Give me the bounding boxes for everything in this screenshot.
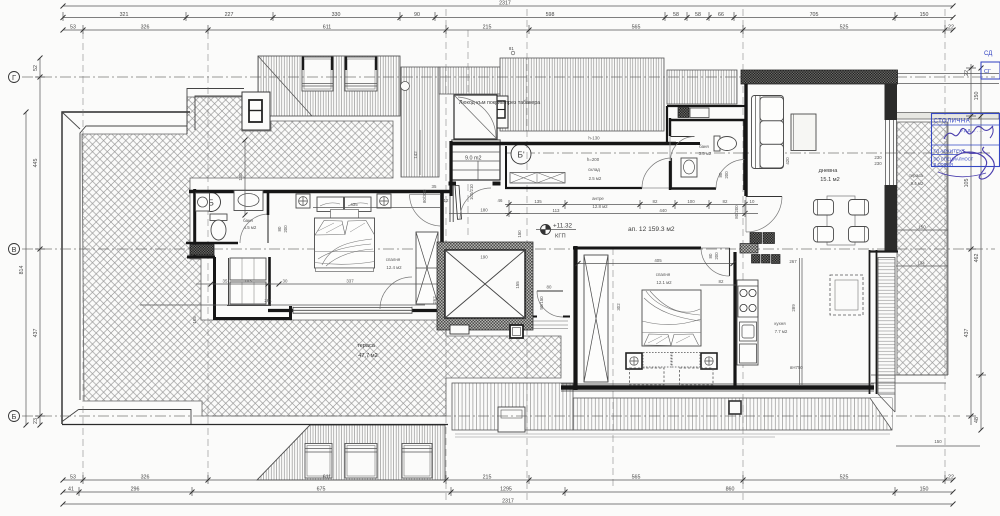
svg-text:437: 437 [964, 329, 970, 338]
svg-text:420: 420 [785, 157, 790, 165]
svg-text:СТОЛИЧНА: СТОЛИЧНА [934, 119, 971, 125]
svg-text:525: 525 [840, 24, 849, 30]
svg-text:337: 337 [346, 279, 354, 284]
svg-text:тераса: тераса [357, 343, 376, 349]
svg-text:814: 814 [19, 266, 25, 275]
svg-text:35: 35 [432, 184, 437, 189]
svg-text:150: 150 [918, 224, 926, 229]
svg-text:113: 113 [553, 208, 561, 213]
svg-text:150: 150 [934, 439, 942, 444]
svg-text:611: 611 [323, 474, 331, 480]
svg-text:СД: СД [984, 51, 992, 57]
svg-text:180: 180 [480, 208, 488, 213]
svg-text:326: 326 [141, 24, 150, 30]
svg-text:190: 190 [480, 255, 488, 260]
svg-text:h-130: h-130 [588, 136, 600, 141]
svg-text:100: 100 [687, 199, 695, 204]
svg-text:22: 22 [948, 474, 954, 480]
svg-text:440: 440 [659, 208, 667, 213]
svg-text:4.5 м2: 4.5 м2 [244, 225, 257, 230]
svg-text:склад: склад [588, 167, 600, 172]
svg-text:тераса: тераса [909, 173, 923, 178]
svg-text:155: 155 [515, 281, 520, 289]
svg-text:53: 53 [70, 24, 76, 30]
svg-text:142: 142 [413, 151, 418, 159]
svg-text:82: 82 [723, 199, 728, 204]
svg-text:130: 130 [238, 173, 243, 181]
svg-text:12: 12 [444, 198, 449, 203]
svg-text:215: 215 [483, 24, 492, 30]
svg-text:262: 262 [432, 296, 437, 304]
svg-text:66: 66 [718, 12, 724, 18]
svg-text:80/200: 80/200 [734, 205, 739, 219]
svg-text:860: 860 [726, 486, 735, 492]
svg-text:35: 35 [223, 279, 228, 284]
svg-text:15.1 м2: 15.1 м2 [820, 177, 839, 183]
svg-text:598: 598 [546, 12, 555, 18]
svg-text:80/200: 80/200 [422, 189, 427, 203]
svg-text:23: 23 [33, 418, 39, 424]
svg-text:230: 230 [874, 161, 882, 166]
svg-text:вН750: вН750 [790, 365, 803, 370]
svg-text:100/210: 100/210 [469, 184, 474, 200]
svg-text:1295: 1295 [500, 486, 512, 492]
svg-text:баня: баня [243, 218, 253, 223]
svg-text:230: 230 [874, 155, 882, 160]
svg-text:90/150: 90/150 [539, 296, 544, 310]
svg-text:82: 82 [653, 199, 658, 204]
svg-text:48: 48 [974, 417, 980, 423]
svg-text:22: 22 [964, 70, 970, 76]
svg-text:Б': Б' [517, 150, 525, 160]
svg-text:спалня: спалня [386, 257, 401, 262]
svg-text:58: 58 [673, 12, 679, 18]
svg-text:10: 10 [750, 199, 755, 204]
svg-text:405: 405 [654, 258, 662, 263]
svg-text:150: 150 [517, 230, 522, 238]
svg-text:261: 261 [264, 298, 272, 303]
svg-text:9.4 м2: 9.4 м2 [911, 181, 924, 186]
svg-text:150: 150 [920, 486, 929, 492]
svg-text:кухня: кухня [774, 321, 786, 326]
svg-text:200: 200 [283, 225, 288, 233]
svg-text:80: 80 [708, 253, 713, 258]
svg-text:200: 200 [714, 252, 719, 260]
svg-text:103: 103 [244, 279, 252, 284]
svg-text:90: 90 [414, 12, 420, 18]
svg-text:9.0 m2: 9.0 m2 [465, 156, 481, 162]
svg-text:81: 81 [509, 46, 514, 51]
svg-text:200: 200 [724, 171, 729, 179]
svg-text:+11.32: +11.32 [553, 223, 572, 230]
svg-text:В: В [11, 245, 16, 254]
svg-text:150: 150 [920, 12, 929, 18]
svg-text:565: 565 [632, 24, 641, 30]
svg-text:82: 82 [719, 279, 724, 284]
svg-text:80: 80 [718, 172, 723, 177]
svg-text:80: 80 [277, 226, 282, 231]
svg-text:80: 80 [547, 285, 552, 290]
svg-text:134: 134 [917, 260, 925, 265]
svg-text:Г: Г [12, 73, 16, 82]
svg-text:52: 52 [33, 65, 39, 71]
svg-text:Люкод към покрив през табакера: Люкод към покрив през табакера [459, 100, 540, 106]
svg-text:дневна: дневна [819, 168, 839, 174]
svg-text:58: 58 [695, 12, 701, 18]
svg-text:30: 30 [283, 279, 288, 284]
svg-text:12.4 м2: 12.4 м2 [386, 265, 402, 270]
svg-text:баня: баня [699, 144, 709, 149]
svg-text:7.7 м2: 7.7 м2 [775, 329, 788, 334]
svg-text:ап. 12 159.3 м2: ап. 12 159.3 м2 [628, 226, 675, 233]
svg-text:435: 435 [350, 202, 358, 207]
svg-text:705: 705 [810, 12, 819, 18]
svg-text:462: 462 [974, 254, 980, 263]
svg-text:525: 525 [840, 474, 849, 480]
svg-text:2317: 2317 [499, 1, 511, 7]
svg-text:330: 330 [332, 12, 341, 18]
svg-text:227: 227 [225, 12, 234, 18]
svg-text:565: 565 [632, 474, 641, 480]
svg-text:3.5 м2: 3.5 м2 [699, 151, 712, 156]
svg-text:2.5 м2: 2.5 м2 [589, 176, 602, 181]
svg-text:КГП: КГП [555, 234, 566, 240]
svg-text:135: 135 [534, 199, 542, 204]
svg-text:326: 326 [141, 474, 150, 480]
svg-text:165: 165 [192, 316, 197, 324]
svg-text:302: 302 [616, 303, 621, 311]
svg-text:СГ: СГ [984, 69, 991, 75]
svg-text:h=200: h=200 [587, 157, 600, 162]
svg-text:675: 675 [317, 486, 326, 492]
svg-text:41: 41 [68, 486, 74, 492]
svg-text:антре: антре [592, 196, 604, 201]
svg-text:22: 22 [948, 24, 954, 30]
svg-text:215: 215 [483, 474, 492, 480]
svg-text:12.1 м2: 12.1 м2 [656, 280, 672, 285]
svg-text:445: 445 [33, 159, 39, 168]
svg-text:437: 437 [33, 329, 39, 338]
svg-text:53: 53 [70, 474, 76, 480]
svg-text:спалня: спалня [656, 272, 671, 277]
svg-text:150: 150 [974, 92, 980, 101]
svg-text:105: 105 [964, 179, 970, 188]
svg-text:12.8 м2: 12.8 м2 [592, 204, 608, 209]
svg-text:2317: 2317 [502, 498, 514, 504]
svg-text:321: 321 [120, 12, 129, 18]
svg-text:289: 289 [791, 304, 796, 312]
svg-text:Б: Б [12, 412, 17, 421]
svg-text:267: 267 [789, 259, 797, 264]
svg-text:47,7 м2: 47,7 м2 [358, 353, 377, 359]
svg-text:611: 611 [323, 24, 331, 30]
svg-text:296: 296 [131, 486, 140, 492]
svg-text:46: 46 [498, 198, 503, 203]
